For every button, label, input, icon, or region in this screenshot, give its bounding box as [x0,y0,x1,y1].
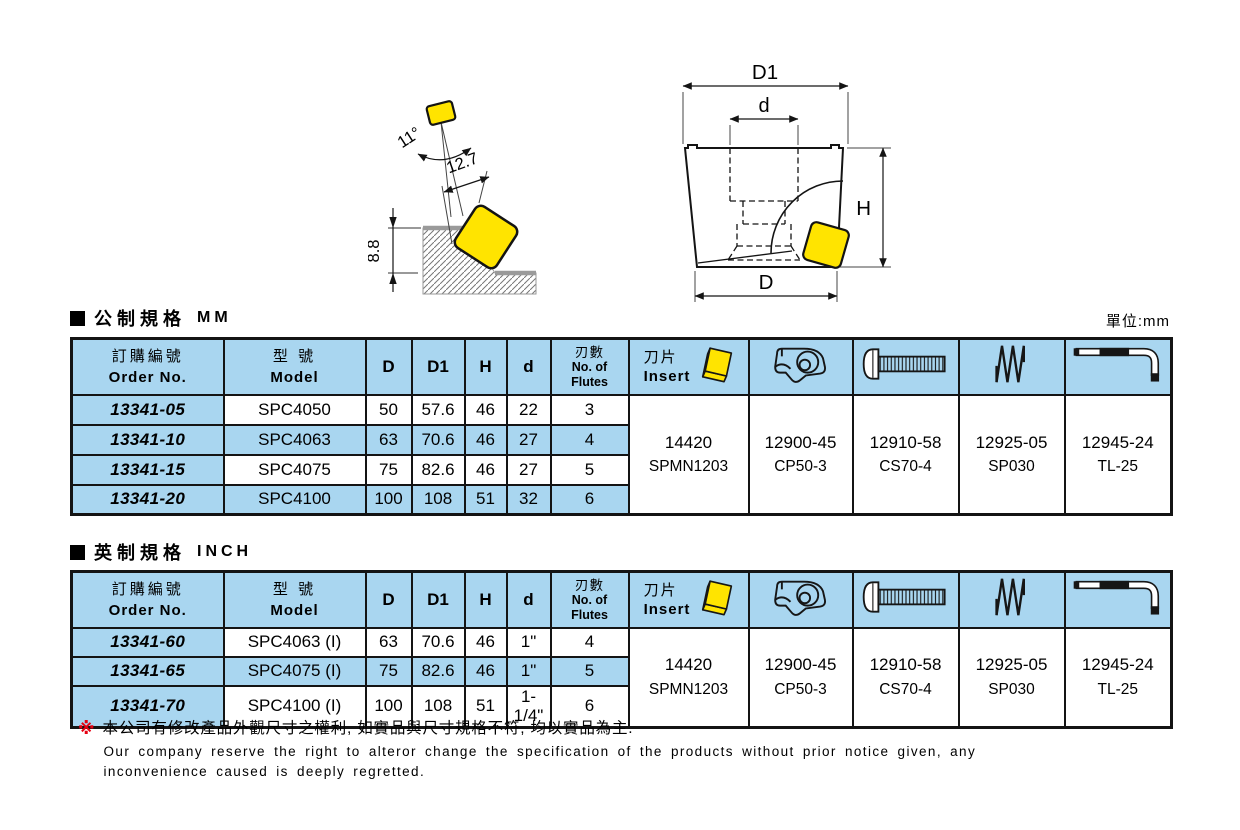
note-line-en-2: inconvenience caused is deeply regretted… [104,762,977,782]
wrench-icon [1070,343,1166,385]
header-spring [959,572,1065,628]
part-wrench-cell: 12945-24 TL-25 [1065,395,1172,515]
table-header-row: 訂購編號 Order No. 型 號 Model D D1 H d 刃數 No.… [72,572,1172,628]
h-cell: 51 [465,485,507,515]
header-model: 型 號 Model [224,572,366,628]
model-cell: SPC4050 [224,395,366,425]
ds-cell: 22 [507,395,551,425]
screw-icon [860,580,952,614]
model-cell: SPC4075 (I) [224,657,366,686]
order-cell: 13341-65 [72,657,224,686]
header-d: d [507,339,551,395]
header-order-no: 訂購編號 Order No. [72,339,224,395]
small-insert-icon [426,101,456,126]
cutter-body-diagram: D1 d H D [640,48,930,314]
section-title-en: MM [197,309,232,327]
spring-icon [992,341,1032,387]
h-cell: 46 [465,425,507,455]
model-cell: SPC4063 (I) [224,628,366,657]
part-spring-cell: 12925-05 SP030 [959,395,1065,515]
h-cell: 46 [465,395,507,425]
header-d: d [507,572,551,628]
flutes-cell: 5 [551,657,629,686]
header-insert: 刀片 Insert [629,572,749,628]
d1-cell: 70.6 [412,425,465,455]
header-spring [959,339,1065,395]
order-cell: 13341-60 [72,628,224,657]
depth-label: 8.8 [368,240,383,263]
order-cell: 13341-20 [72,485,224,515]
header-screw [853,339,959,395]
unit-label: 單位:mm [1106,310,1170,331]
d1-cell: 82.6 [412,455,465,485]
screw-icon [860,347,952,381]
ds-cell: 1" [507,657,551,686]
flutes-cell: 6 [551,485,629,515]
part-spring-cell: 12925-05 SP030 [959,628,1065,728]
header-order-no: 訂購編號 Order No. [72,572,224,628]
d1-cell: 70.6 [412,628,465,657]
header-model: 型 號 Model [224,339,366,395]
order-cell: 13341-05 [72,395,224,425]
wrench-icon [1070,576,1166,618]
section-title-zh: 英制規格 [94,539,186,565]
bottom-dia-label: D [759,271,774,294]
order-cell: 13341-10 [72,425,224,455]
part-insert-cell: 14420 SPMN1203 [629,395,749,515]
spring-icon [992,574,1032,620]
angle-label: 11° [394,124,424,152]
header-wrench [1065,572,1172,628]
note-line-zh: 本公司有修改產品外觀尺寸之權利, 如實品與尺寸規格不符, 均以實品為主. [103,719,977,739]
table-row: 13341-05 SPC4050 50 57.6 46 22 3 14420 S… [72,395,1172,425]
header-D: D [366,339,412,395]
part-clamp-cell: 12900-45 CP50-3 [749,628,853,728]
dimension-d [730,119,798,145]
ds-cell: 1" [507,628,551,657]
part-clamp-cell: 12900-45 CP50-3 [749,395,853,515]
ds-cell: 27 [507,455,551,485]
d1-cell: 82.6 [412,657,465,686]
part-screw-cell: 12910-58 CS70-4 [853,628,959,728]
header-H: H [465,572,507,628]
order-cell: 13341-15 [72,455,224,485]
note-line-en-1: Our company reserve the right to alteror… [104,742,977,762]
insert-icon [697,578,733,622]
d-cell: 75 [366,657,412,686]
metric-section-title: 公制規格 MM [70,305,232,331]
note-marker: ※ [78,719,95,739]
header-screw [853,572,959,628]
d-cell: 63 [366,425,412,455]
header-flutes: 刃數 No. of Flutes [551,339,629,395]
flutes-cell: 4 [551,425,629,455]
d1-label: D1 [752,61,778,84]
inch-spec-table: 訂購編號 Order No. 型 號 Model D D1 H d 刃數 No.… [70,570,1173,729]
header-D1: D1 [412,339,465,395]
part-insert-cell: 14420 SPMN1203 [629,628,749,728]
header-wrench [1065,339,1172,395]
d1-cell: 57.6 [412,395,465,425]
ds-cell: 27 [507,425,551,455]
section-title-zh: 公制規格 [94,305,186,331]
d1-cell: 108 [412,485,465,515]
header-clamp [749,339,853,395]
section-bullet [70,311,85,326]
flutes-cell: 3 [551,395,629,425]
h-cell: 46 [465,657,507,686]
model-cell: SPC4063 [224,425,366,455]
flutes-cell: 5 [551,455,629,485]
bore-label: d [758,95,769,117]
header-insert: 刀片 Insert [629,339,749,395]
d-cell: 63 [366,628,412,657]
header-D: D [366,572,412,628]
clamp-icon [769,342,833,386]
section-bullet [70,545,85,560]
flutes-cell: 4 [551,628,629,657]
header-H: H [465,339,507,395]
part-screw-cell: 12910-58 CS70-4 [853,395,959,515]
d-cell: 75 [366,455,412,485]
height-label: H [856,197,871,220]
d-cell: 50 [366,395,412,425]
ds-cell: 32 [507,485,551,515]
inch-section-title: 英制規格 INCH [70,539,252,565]
d-cell: 100 [366,485,412,515]
dimension-8-8 [388,208,421,292]
part-wrench-cell: 12945-24 TL-25 [1065,628,1172,728]
model-cell: SPC4075 [224,455,366,485]
metric-spec-table: 訂購編號 Order No. 型 號 Model D D1 H d 刃數 No.… [70,337,1173,516]
h-cell: 46 [465,628,507,657]
width-label: 12.7 [444,149,480,177]
clamp-icon [769,575,833,619]
header-D1: D1 [412,572,465,628]
model-cell: SPC4100 [224,485,366,515]
header-clamp [749,572,853,628]
table-header-row: 訂購編號 Order No. 型 號 Model D D1 H d 刃數 No.… [72,339,1172,395]
section-title-en: INCH [197,543,252,561]
table-row: 13341-60 SPC4063 (I) 63 70.6 46 1" 4 144… [72,628,1172,657]
h-cell: 46 [465,455,507,485]
insert-icon [697,345,733,389]
insert-geometry-diagram: 8.8 11° 12.7 [368,80,560,302]
disclaimer-note: ※ 本公司有修改產品外觀尺寸之權利, 如實品與尺寸規格不符, 均以實品為主. O… [78,719,1178,781]
header-flutes: 刃數 No. of Flutes [551,572,629,628]
